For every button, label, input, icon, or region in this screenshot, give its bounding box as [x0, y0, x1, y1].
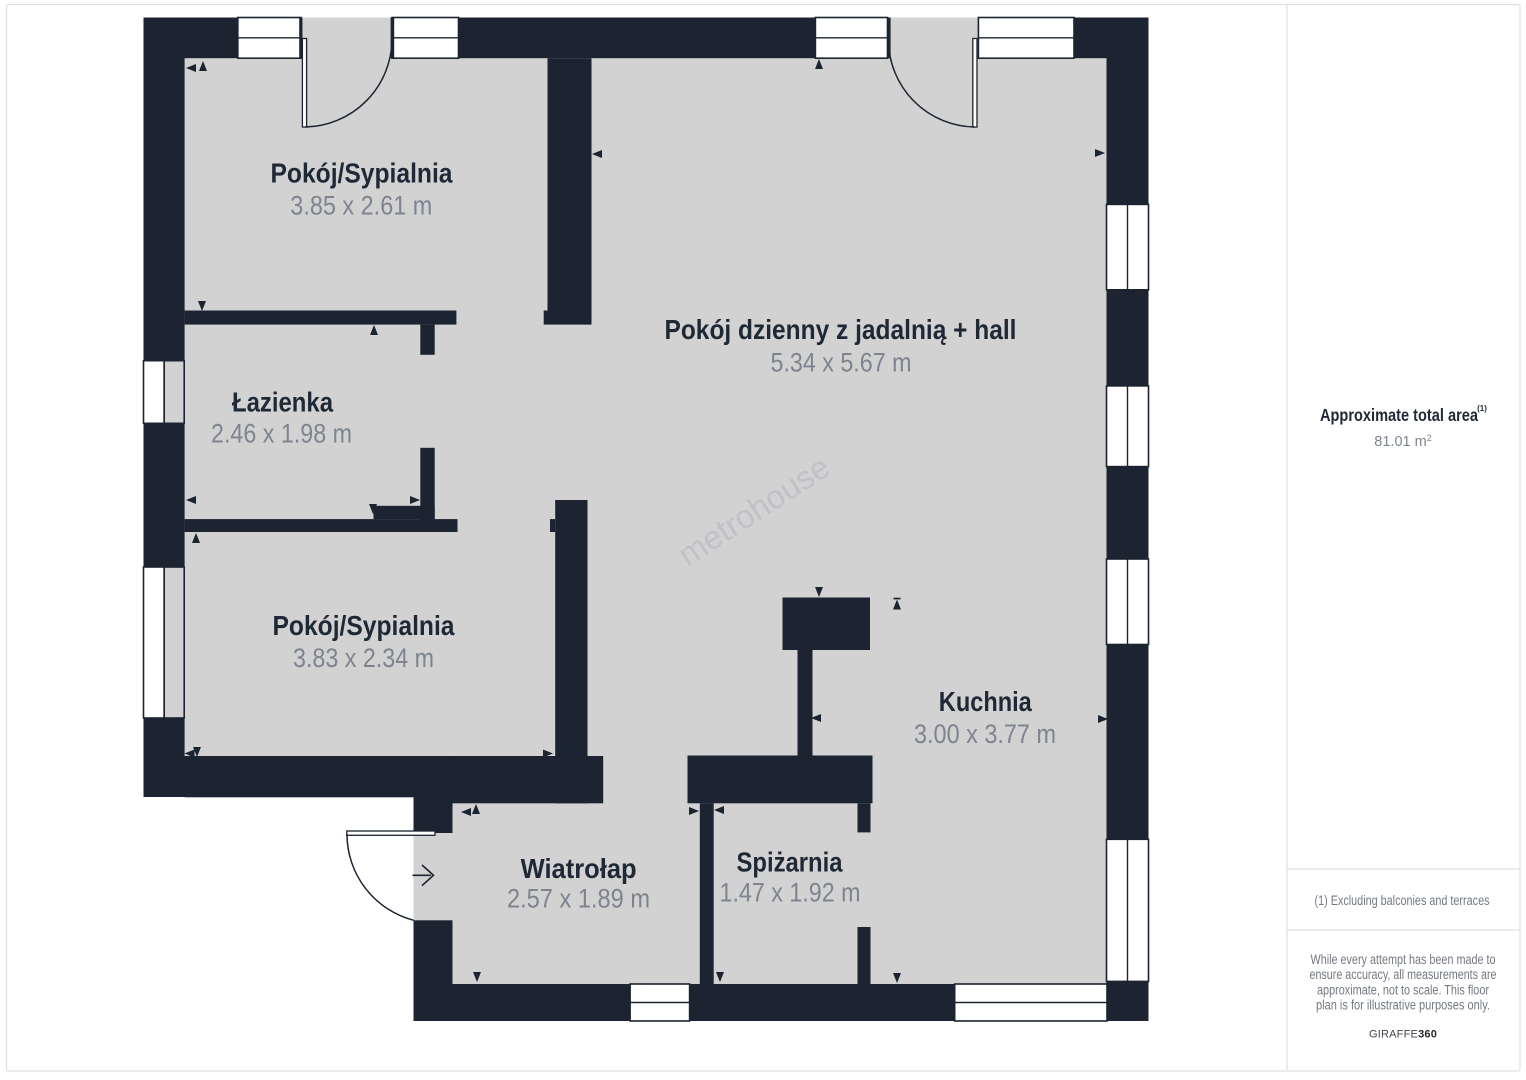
- svg-text:3.85 x 2.61 m: 3.85 x 2.61 m: [290, 190, 432, 220]
- svg-text:2.57 x 1.89 m: 2.57 x 1.89 m: [507, 884, 650, 914]
- svg-text:While every attempt has been m: While every attempt has been made to: [1311, 952, 1496, 967]
- svg-text:Łazienka: Łazienka: [232, 387, 333, 418]
- svg-text:Wiatrołap: Wiatrołap: [521, 853, 637, 884]
- svg-text:ensure accuracy, all measureme: ensure accuracy, all measurements are: [1310, 967, 1497, 982]
- svg-text:5.34 x 5.67 m: 5.34 x 5.67 m: [771, 348, 912, 378]
- svg-text:Pokój dzienny z jadalnią + hal: Pokój dzienny z jadalnią + hall: [665, 314, 1017, 345]
- svg-text:approximate, not to scale. Thi: approximate, not to scale. This floor: [1317, 982, 1489, 997]
- svg-text:GIRAFFE360: GIRAFFE360: [1369, 1029, 1437, 1041]
- svg-text:Pokój/Sypialnia: Pokój/Sypialnia: [271, 158, 453, 189]
- svg-text:1.47 x 1.92 m: 1.47 x 1.92 m: [720, 878, 861, 908]
- svg-text:(1): (1): [1477, 404, 1487, 413]
- svg-text:81.01 m2: 81.01 m2: [1374, 433, 1431, 450]
- svg-text:3.00 x 3.77 m: 3.00 x 3.77 m: [914, 719, 1056, 749]
- svg-text:Approximate total area: Approximate total area: [1320, 405, 1478, 425]
- svg-text:plan is for illustrative purpo: plan is for illustrative purposes only.: [1316, 998, 1490, 1013]
- svg-text:Spiżarnia: Spiżarnia: [737, 847, 843, 878]
- svg-text:Pokój/Sypialnia: Pokój/Sypialnia: [273, 610, 455, 641]
- svg-text:Kuchnia: Kuchnia: [939, 686, 1032, 717]
- svg-text:3.83 x 2.34 m: 3.83 x 2.34 m: [293, 643, 434, 673]
- svg-text:2.46 x 1.98 m: 2.46 x 1.98 m: [211, 419, 352, 449]
- svg-text:(1) Excluding balconies and te: (1) Excluding balconies and terraces: [1315, 893, 1490, 908]
